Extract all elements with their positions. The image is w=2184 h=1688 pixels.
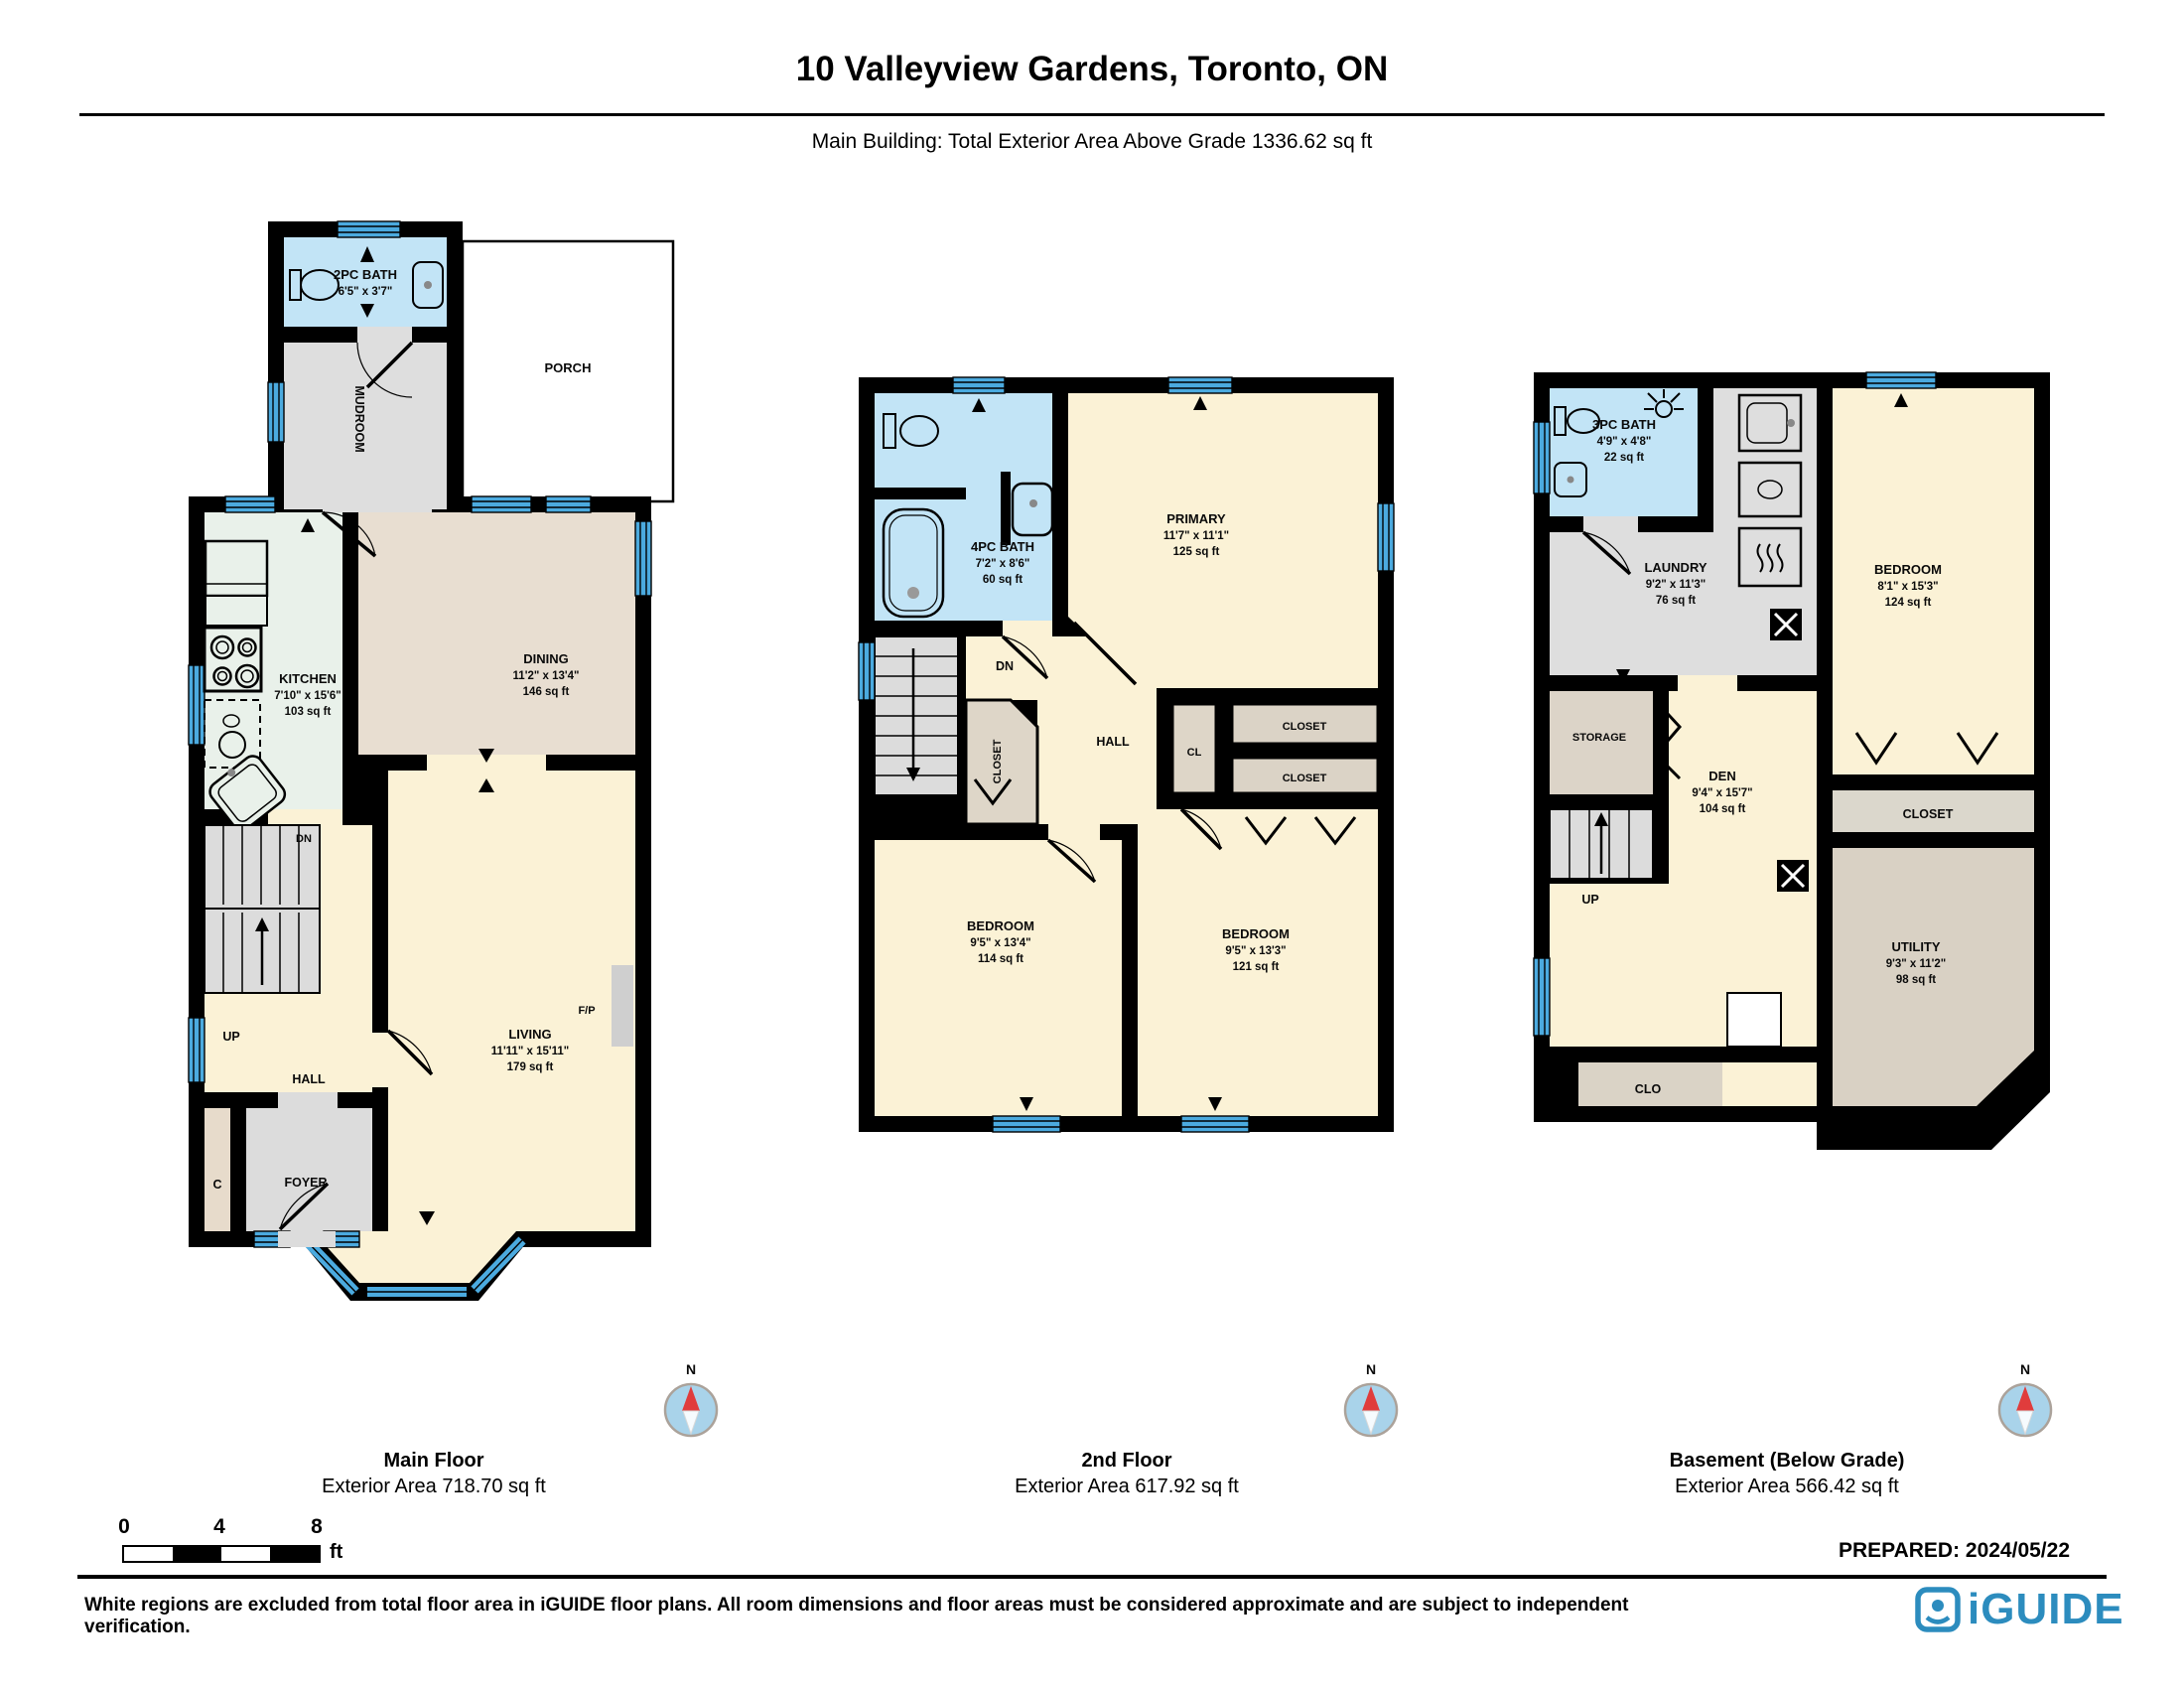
label-utility: UTILITY [1891, 939, 1940, 954]
scale-unit: ft [330, 1541, 342, 1564]
svg-text:60 sq ft: 60 sq ft [983, 574, 1023, 586]
page-subtitle: Main Building: Total Exterior Area Above… [0, 130, 2184, 154]
floor-name: Main Floor [176, 1448, 692, 1474]
floorplan-page: 10 Valleyview Gardens, Toronto, ON Main … [0, 0, 2184, 1688]
svg-text:7'2" x 8'6": 7'2" x 8'6" [976, 558, 1030, 570]
svg-text:9'4" x 15'7": 9'4" x 15'7" [1692, 787, 1752, 799]
svg-text:22 sq ft: 22 sq ft [1604, 452, 1644, 464]
label-2pc-bath-dims: 6'5" x 3'7" [339, 286, 393, 298]
floor-name: Basement (Below Grade) [1529, 1448, 2045, 1474]
label-closet-b: CLOSET [1283, 773, 1327, 784]
caption-2nd-floor: 2nd Floor Exterior Area 617.92 sq ft [869, 1448, 1385, 1499]
label-closet-rot: CLOSET [992, 739, 1004, 783]
laundry-fixtures [1739, 395, 1801, 586]
svg-text:9'3" x 11'2": 9'3" x 11'2" [1886, 958, 1947, 970]
label-cl: CL [1187, 747, 1202, 759]
svg-text:104 sq ft: 104 sq ft [1700, 803, 1746, 815]
label-storage: STORAGE [1572, 732, 1626, 744]
label-kitchen: KITCHEN [279, 671, 337, 686]
basement-plan: 3PC BATH 4'9" x 4'8" 22 sq ft LAUNDRY 9'… [1529, 367, 2065, 1162]
label-dn-2: DN [996, 659, 1014, 673]
svg-text:9'5" x 13'4": 9'5" x 13'4" [970, 937, 1030, 949]
svg-text:124 sq ft: 124 sq ft [1885, 597, 1932, 609]
main-floor-plan: 2PC BATH 6'5" x 3'7" MUDROOM PORCH KITCH… [129, 159, 725, 1301]
room-hall-2 [966, 636, 1157, 700]
label-hall-2: HALL [1096, 735, 1130, 749]
label-hall: HALL [292, 1072, 326, 1086]
label-3pc-bath: 3PC BATH [1592, 417, 1656, 432]
room-closet-c [205, 1108, 230, 1231]
compass-n-label: N [686, 1361, 696, 1377]
room-bedroom1 [875, 840, 1122, 1116]
label-foyer: FOYER [284, 1176, 327, 1190]
svg-text:114 sq ft: 114 sq ft [978, 953, 1024, 965]
iguide-logo: iGUIDE [1914, 1585, 2124, 1634]
caption-basement: Basement (Below Grade) Exterior Area 566… [1529, 1448, 2045, 1499]
floor-area: Exterior Area 718.70 sq ft [176, 1474, 692, 1499]
svg-text:146 sq ft: 146 sq ft [523, 686, 570, 698]
scale-tick-0: 0 [109, 1515, 139, 1539]
scale-bar [122, 1545, 321, 1563]
page-title: 10 Valleyview Gardens, Toronto, ON [0, 50, 2184, 89]
label-closet-c: C [212, 1178, 221, 1192]
compass-second: N [1336, 1360, 1406, 1444]
label-dining: DINING [523, 651, 569, 666]
label-2pc-bath: 2PC BATH [334, 267, 397, 282]
label-mudroom: MUDROOM [352, 385, 366, 452]
caption-main-floor: Main Floor Exterior Area 718.70 sq ft [176, 1448, 692, 1499]
compass-main: N [656, 1360, 726, 1444]
label-clo: CLO [1635, 1082, 1662, 1096]
svg-text:N: N [2020, 1361, 2030, 1377]
label-up: UP [222, 1030, 239, 1044]
label-porch: PORCH [545, 360, 592, 375]
svg-text:9'2" x 11'3": 9'2" x 11'3" [1646, 579, 1706, 591]
floor-area: Exterior Area 617.92 sq ft [869, 1474, 1385, 1499]
label-laundry: LAUNDRY [1644, 560, 1706, 575]
svg-text:103 sq ft: 103 sq ft [285, 706, 332, 718]
svg-text:7'10" x 15'6": 7'10" x 15'6" [274, 690, 341, 702]
svg-text:8'1" x 15'3": 8'1" x 15'3" [1877, 581, 1938, 593]
svg-text:121 sq ft: 121 sq ft [1233, 961, 1280, 973]
room-dining [358, 512, 635, 755]
iguide-camera-icon [1914, 1586, 1962, 1633]
svg-text:179 sq ft: 179 sq ft [507, 1061, 554, 1073]
label-living: LIVING [508, 1027, 551, 1042]
stove [205, 628, 261, 691]
label-bedroom-b: BEDROOM [1874, 562, 1942, 577]
scale-tick-8: 8 [302, 1515, 332, 1539]
label-bedroom2: BEDROOM [1222, 926, 1290, 941]
iguide-logo-text: iGUIDE [1968, 1585, 2124, 1634]
svg-text:9'5" x 13'3": 9'5" x 13'3" [1225, 945, 1286, 957]
room-foyer [246, 1108, 372, 1231]
svg-text:98 sq ft: 98 sq ft [1896, 974, 1936, 986]
label-up-b: UP [1581, 893, 1598, 907]
label-dn: DN [296, 833, 312, 845]
svg-text:11'7" x 11'1": 11'7" x 11'1" [1163, 530, 1229, 542]
label-closet-a: CLOSET [1283, 721, 1327, 733]
label-primary: PRIMARY [1166, 511, 1226, 526]
label-closet-bsmt: CLOSET [1903, 807, 1954, 821]
label-fp: F/P [578, 1005, 595, 1017]
second-floor-plan: 4PC BATH 7'2" x 8'6" 60 sq ft PRIMARY 11… [854, 372, 1420, 1147]
fireplace-hearth [612, 965, 633, 1047]
floor-name: 2nd Floor [869, 1448, 1385, 1474]
window-well [1727, 993, 1781, 1047]
scale-tick-4: 4 [205, 1515, 234, 1539]
stairs-main [205, 825, 320, 993]
footer-disclaimer: White regions are excluded from total fl… [84, 1595, 1673, 1638]
label-bedroom1: BEDROOM [967, 918, 1034, 933]
svg-text:4'9" x 4'8": 4'9" x 4'8" [1597, 436, 1652, 448]
label-4pc-bath: 4PC BATH [971, 539, 1034, 554]
svg-text:76 sq ft: 76 sq ft [1656, 595, 1696, 607]
svg-text:11'2" x 13'4": 11'2" x 13'4" [513, 670, 580, 682]
prepared-date: PREPARED: 2024/05/22 [1688, 1539, 2070, 1563]
label-den: DEN [1708, 769, 1735, 783]
compass-basement: N [1990, 1360, 2060, 1444]
floor-area: Exterior Area 566.42 sq ft [1529, 1474, 2045, 1499]
divider-top [79, 113, 2105, 116]
svg-text:N: N [1366, 1361, 1376, 1377]
room-living [388, 771, 635, 1231]
divider-bottom [77, 1575, 2107, 1579]
svg-text:125 sq ft: 125 sq ft [1173, 546, 1220, 558]
svg-text:11'11" x 15'11": 11'11" x 15'11" [491, 1046, 569, 1057]
